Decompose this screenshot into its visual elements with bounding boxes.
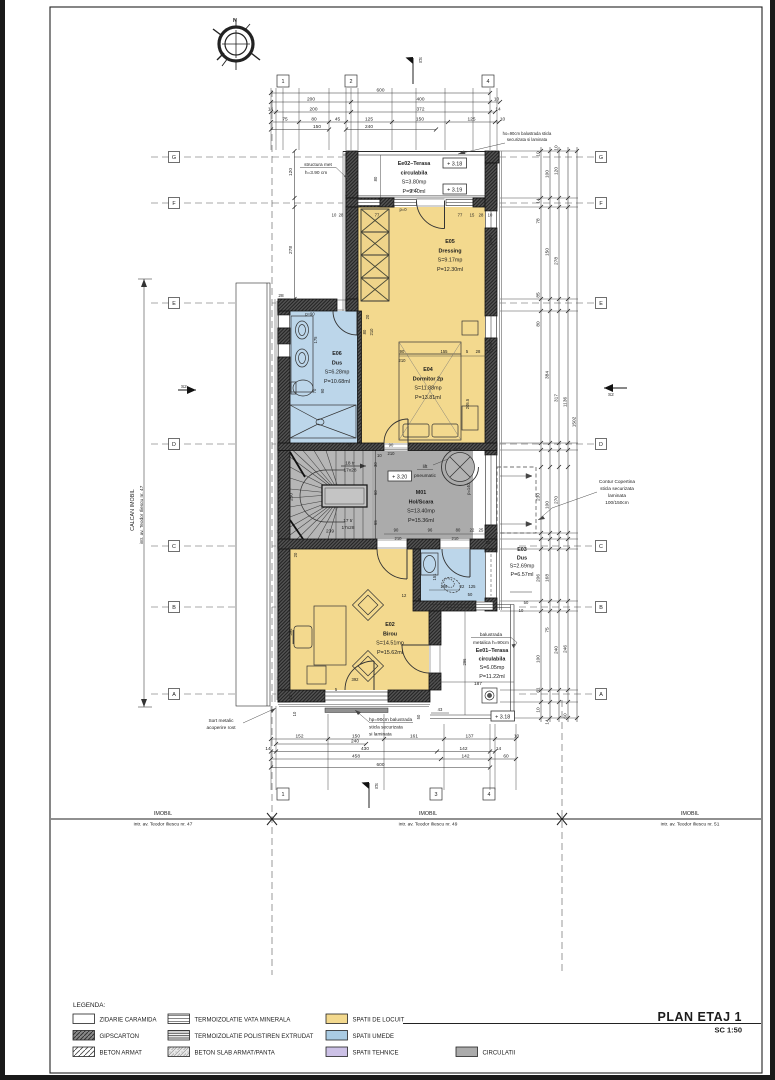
svg-text:M01: M01 [416, 490, 427, 496]
svg-text:10: 10 [514, 733, 520, 739]
svg-text:100/150cm: 100/150cm [605, 500, 629, 506]
svg-text:151: 151 [432, 573, 437, 581]
svg-text:161: 161 [410, 733, 418, 739]
svg-text:p=90: p=90 [488, 235, 493, 245]
svg-text:S=6.05mp: S=6.05mp [480, 665, 505, 671]
svg-text:IMOBIL: IMOBIL [681, 811, 699, 817]
svg-text:372: 372 [417, 106, 425, 112]
svg-text:240: 240 [554, 646, 560, 654]
svg-text:SPATII DE LOCUIT: SPATII DE LOCUIT [353, 1018, 405, 1024]
svg-text:S=11.88mp: S=11.88mp [414, 386, 441, 392]
svg-text:10: 10 [348, 443, 353, 448]
svg-text:intr. av. Teodor Iliescu nr. 5: intr. av. Teodor Iliescu nr. 51 [661, 822, 720, 828]
svg-text:600: 600 [377, 87, 385, 93]
svg-text:sticla securizata: sticla securizata [369, 725, 403, 731]
svg-text:si laminata: si laminata [369, 732, 392, 738]
svg-text:S=2.69mp: S=2.69mp [510, 564, 535, 570]
svg-text:p=90: p=90 [305, 312, 315, 317]
svg-text:125: 125 [365, 116, 373, 122]
svg-text:142: 142 [460, 746, 468, 752]
svg-text:Dormitor 2p: Dormitor 2p [413, 376, 444, 382]
svg-text:metalica h=90cm: metalica h=90cm [473, 640, 509, 646]
svg-text:P=11.22ml: P=11.22ml [479, 674, 505, 680]
svg-text:12: 12 [402, 593, 407, 598]
svg-text:100: 100 [536, 655, 542, 663]
svg-text:430: 430 [361, 746, 369, 752]
svg-text:S=3.80mp: S=3.80mp [402, 180, 427, 186]
svg-text:246: 246 [563, 645, 569, 653]
svg-text:75: 75 [545, 627, 551, 633]
svg-text:75: 75 [282, 116, 288, 122]
svg-text:P=15.62ml: P=15.62ml [377, 650, 403, 656]
svg-text:TERMOIZOLATIE VATA MINERALA: TERMOIZOLATIE VATA MINERALA [195, 1018, 291, 1024]
svg-text:S=14.51mp: S=14.51mp [376, 641, 404, 647]
svg-text:77: 77 [458, 213, 463, 218]
svg-text:circulabila: circulabila [479, 657, 507, 663]
svg-text:A: A [599, 692, 603, 698]
svg-text:4: 4 [487, 79, 490, 85]
svg-text:A: A [172, 692, 176, 698]
svg-text:14: 14 [495, 106, 501, 112]
svg-text:28: 28 [476, 349, 481, 354]
svg-text:4: 4 [488, 792, 491, 798]
svg-text:150: 150 [416, 116, 424, 122]
svg-text:600: 600 [377, 762, 385, 768]
svg-text:10: 10 [536, 151, 542, 157]
svg-text:168: 168 [545, 574, 551, 582]
svg-text:10: 10 [519, 608, 524, 613]
svg-text:22: 22 [460, 584, 465, 589]
svg-text:10: 10 [377, 453, 382, 458]
svg-text:80: 80 [362, 329, 367, 334]
svg-text:10: 10 [292, 711, 297, 716]
svg-text:100: 100 [545, 501, 551, 509]
svg-text:+ 3.18: + 3.18 [447, 162, 462, 168]
svg-text:28: 28 [479, 213, 484, 218]
svg-text:43: 43 [438, 707, 443, 712]
svg-text:392: 392 [352, 677, 360, 682]
svg-text:C: C [172, 544, 176, 550]
svg-text:intr. av. Teodor Iliescu nr. 4: intr. av. Teodor Iliescu nr. 47 [134, 822, 193, 828]
svg-text:Dus: Dus [332, 360, 342, 366]
svg-text:10: 10 [288, 694, 293, 699]
svg-text:S=6.28mp: S=6.28mp [325, 370, 350, 376]
svg-text:Hol/Scara: Hol/Scara [409, 499, 435, 505]
svg-text:IMOBIL: IMOBIL [154, 811, 172, 817]
svg-text:210: 210 [369, 328, 374, 336]
svg-text:100: 100 [545, 170, 551, 178]
svg-text:Birou: Birou [383, 631, 397, 637]
svg-text:317: 317 [554, 394, 560, 402]
svg-text:1136: 1136 [563, 397, 569, 408]
svg-text:50: 50 [486, 540, 491, 545]
svg-text:CALCAN IMOBIL: CALCAN IMOBIL [130, 489, 136, 531]
svg-text:28: 28 [278, 293, 284, 299]
svg-text:D: D [599, 442, 603, 448]
svg-text:22: 22 [470, 528, 475, 533]
svg-text:10: 10 [554, 145, 560, 151]
svg-text:61: 61 [536, 687, 542, 693]
svg-text:h=3.90 cm: h=3.90 cm [305, 170, 327, 176]
svg-text:acoperire rost: acoperire rost [206, 725, 236, 731]
svg-text:205.5: 205.5 [465, 398, 470, 409]
svg-text:45: 45 [335, 116, 341, 122]
svg-text:BETON SLAB ARMAT/PANTA: BETON SLAB ARMAT/PANTA [195, 1051, 275, 1057]
svg-text:270: 270 [554, 496, 560, 504]
svg-text:10: 10 [500, 116, 506, 122]
svg-text:G: G [172, 155, 176, 161]
svg-text:90: 90 [394, 528, 399, 533]
svg-text:+ 3.18: + 3.18 [495, 715, 510, 721]
svg-text:S2: S2 [608, 392, 614, 398]
svg-text:187: 187 [474, 681, 482, 687]
svg-text:balustrada: balustrada [480, 632, 503, 638]
svg-text:laminata: laminata [608, 493, 626, 499]
svg-text:14: 14 [265, 746, 271, 752]
svg-text:14: 14 [268, 106, 274, 112]
svg-text:Dus: Dus [517, 555, 527, 561]
svg-text:structura met: structura met [304, 162, 332, 168]
svg-text:ZIDARIE CARAMIDA: ZIDARIE CARAMIDA [100, 1018, 157, 1024]
svg-text:p=0: p=0 [399, 207, 407, 212]
svg-text:TERMOIZOLATIE POLISTIREN EXTRU: TERMOIZOLATIE POLISTIREN EXTRUDAT [195, 1034, 314, 1040]
svg-text:B: B [599, 605, 603, 611]
svg-text:239: 239 [326, 529, 334, 535]
svg-text:60: 60 [373, 490, 378, 495]
svg-text:120: 120 [288, 168, 294, 176]
svg-text:210: 210 [399, 358, 407, 363]
svg-text:394: 394 [288, 628, 293, 636]
svg-text:intr. av. Teodor Iliescu nr. 4: intr. av. Teodor Iliescu nr. 49 [399, 822, 458, 828]
svg-text:E04: E04 [423, 367, 433, 373]
svg-text:intr. av. Teodor Iliescu nr. 4: intr. av. Teodor Iliescu nr. 47 [139, 485, 145, 544]
svg-text:E: E [599, 301, 603, 307]
svg-text:60: 60 [503, 753, 509, 759]
svg-text:150: 150 [313, 124, 321, 130]
svg-text:152: 152 [296, 733, 304, 739]
svg-text:E02: E02 [385, 622, 395, 628]
svg-text:B: B [172, 605, 176, 611]
svg-text:P=10.68ml: P=10.68ml [324, 379, 350, 385]
svg-text:CIRCULATII: CIRCULATII [483, 1051, 516, 1057]
svg-text:S2: S2 [181, 384, 187, 390]
svg-text:14: 14 [536, 198, 542, 204]
svg-text:10: 10 [332, 213, 337, 218]
svg-text:65: 65 [373, 520, 378, 525]
svg-text:+ 3.19: + 3.19 [447, 188, 462, 194]
svg-text:150: 150 [352, 733, 360, 739]
svg-text:SPATII TEHNICE: SPATII TEHNICE [353, 1051, 399, 1057]
svg-text:17 tr: 17 tr [343, 518, 353, 524]
svg-text:BETON ARMAT: BETON ARMAT [100, 1051, 143, 1057]
svg-text:SC 1:50: SC 1:50 [714, 1026, 742, 1035]
svg-text:17x28: 17x28 [344, 468, 357, 474]
svg-text:1: 1 [282, 79, 285, 85]
svg-text:14: 14 [496, 746, 502, 752]
svg-text:Sort metalic: Sort metalic [208, 718, 234, 724]
svg-text:GIPSCARTON: GIPSCARTON [100, 1034, 139, 1040]
svg-text:80: 80 [311, 116, 317, 122]
svg-text:sticla securizata: sticla securizata [600, 486, 634, 492]
svg-text:LEGENDA:: LEGENDA: [73, 1002, 106, 1009]
svg-text:S3: S3 [373, 783, 379, 789]
svg-text:SPATII UMEDE: SPATII UMEDE [353, 1034, 394, 1040]
svg-text:458: 458 [352, 753, 360, 759]
svg-text:10: 10 [494, 96, 500, 102]
svg-text:80: 80 [456, 528, 461, 533]
svg-text:210: 210 [395, 536, 403, 541]
svg-text:278: 278 [554, 257, 560, 265]
svg-text:N: N [233, 18, 237, 24]
svg-text:77: 77 [375, 213, 380, 218]
svg-text:200: 200 [307, 96, 315, 102]
svg-text:Ee01–Terasa: Ee01–Terasa [476, 648, 510, 654]
svg-text:+ 3.20: + 3.20 [392, 475, 407, 481]
svg-text:1: 1 [282, 792, 285, 798]
svg-text:E05: E05 [445, 239, 455, 245]
svg-text:10: 10 [488, 213, 493, 218]
svg-text:278: 278 [288, 246, 294, 254]
svg-text:C: C [599, 544, 603, 550]
svg-text:P=12.30ml: P=12.30ml [437, 267, 463, 273]
svg-text:G: G [599, 155, 603, 161]
svg-text:IMOBIL: IMOBIL [419, 811, 437, 817]
svg-text:P=6.57ml: P=6.57ml [511, 572, 534, 578]
svg-text:160: 160 [441, 584, 449, 589]
svg-text:18 tr: 18 tr [345, 461, 355, 467]
svg-text:137: 137 [466, 733, 474, 739]
svg-text:50: 50 [524, 600, 529, 605]
svg-text:90: 90 [400, 349, 405, 354]
svg-text:85: 85 [536, 292, 542, 298]
svg-text:1502: 1502 [572, 416, 578, 427]
svg-text:384: 384 [545, 371, 551, 379]
svg-text:240: 240 [365, 124, 373, 130]
svg-text:Contur Copertina: Contur Copertina [599, 479, 636, 485]
svg-text:80: 80 [536, 321, 542, 327]
svg-text:circulabila: circulabila [401, 170, 429, 176]
svg-text:25: 25 [479, 528, 484, 533]
svg-text:296: 296 [462, 658, 467, 666]
svg-text:60: 60 [563, 713, 569, 719]
svg-text:S=13.40mp: S=13.40mp [407, 509, 435, 515]
svg-text:30: 30 [373, 462, 378, 467]
svg-text:ho=90cm balustrada sticla: ho=90cm balustrada sticla [503, 131, 552, 136]
svg-text:Dressing: Dressing [438, 248, 461, 254]
svg-text:E03: E03 [517, 547, 527, 553]
svg-text:lift: lift [423, 464, 428, 470]
svg-text:S=9.17mp: S=9.17mp [438, 258, 463, 264]
svg-text:125: 125 [468, 116, 476, 122]
svg-text:150: 150 [545, 248, 551, 256]
svg-text:E: E [172, 301, 176, 307]
svg-text:pneumatic: pneumatic [414, 473, 437, 479]
svg-text:Ee02–Terasa: Ee02–Terasa [398, 161, 432, 167]
svg-text:175: 175 [313, 336, 318, 344]
svg-text:S3: S3 [417, 57, 423, 63]
svg-text:50: 50 [416, 714, 421, 719]
svg-text:70: 70 [312, 388, 317, 393]
svg-text:206: 206 [536, 574, 542, 582]
svg-text:120: 120 [554, 167, 560, 175]
svg-text:10: 10 [536, 707, 542, 713]
svg-text:96: 96 [428, 528, 433, 533]
svg-text:50: 50 [468, 592, 473, 597]
svg-text:17x28: 17x28 [342, 525, 355, 531]
svg-text:20: 20 [365, 314, 370, 319]
svg-text:210: 210 [388, 451, 396, 456]
svg-text:142: 142 [462, 753, 470, 759]
svg-text:10: 10 [487, 349, 492, 354]
svg-text:p=140: p=140 [466, 482, 471, 494]
svg-text:securizata si laminata: securizata si laminata [507, 137, 548, 142]
svg-text:D: D [172, 442, 176, 448]
svg-text:PLAN ETAJ 1: PLAN ETAJ 1 [658, 1010, 742, 1024]
svg-text:200: 200 [310, 106, 318, 112]
svg-text:80: 80 [373, 176, 378, 181]
svg-text:155: 155 [441, 349, 449, 354]
svg-text:400: 400 [417, 96, 425, 102]
svg-text:78: 78 [536, 218, 542, 224]
svg-text:20: 20 [293, 552, 298, 557]
svg-text:210: 210 [452, 536, 460, 541]
svg-text:240: 240 [351, 739, 359, 745]
svg-text:E06: E06 [332, 351, 342, 357]
svg-text:90: 90 [389, 443, 394, 448]
svg-text:p=0: p=0 [410, 188, 418, 193]
svg-text:14: 14 [545, 719, 551, 725]
svg-text:P=13.81ml: P=13.81ml [415, 395, 441, 401]
svg-text:125: 125 [469, 584, 477, 589]
svg-text:15: 15 [470, 213, 475, 218]
svg-text:230: 230 [536, 493, 542, 501]
svg-text:hp=90cm balustrada: hp=90cm balustrada [369, 717, 413, 723]
svg-text:3: 3 [435, 792, 438, 798]
svg-text:28: 28 [339, 213, 344, 218]
svg-text:P=15.36ml: P=15.36ml [408, 518, 434, 524]
svg-text:90: 90 [320, 388, 325, 393]
svg-text:2: 2 [350, 79, 353, 85]
